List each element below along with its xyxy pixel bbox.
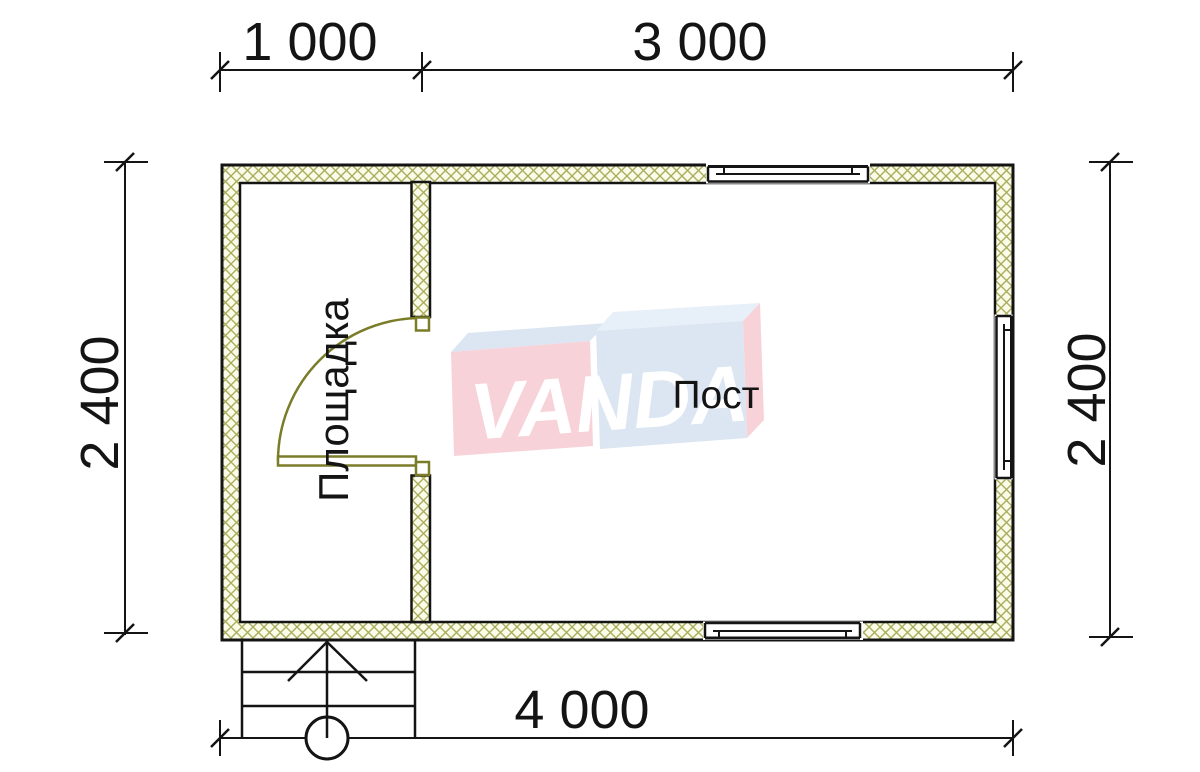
- door-frame-block-top: [416, 318, 429, 331]
- partition-wall-upper: [412, 182, 431, 317]
- dimension-top: 1 000 3 000: [211, 12, 1022, 92]
- window-right-wall: [995, 315, 1013, 480]
- dimension-left: 2 400: [70, 153, 148, 642]
- dim-label-bottom: 4 000: [514, 680, 649, 740]
- window-top-wall: [706, 164, 870, 184]
- dim-label-top-left: 1 000: [242, 12, 377, 72]
- floor-plan-page: 1 000 3 000 2 400 2 400 4 000 VANDA Площ…: [0, 0, 1200, 772]
- dim-label-top-right: 3 000: [632, 12, 767, 72]
- floor-plan-svg: 1 000 3 000 2 400 2 400 4 000 VANDA Площ…: [0, 0, 1200, 772]
- room-label-main: Пост: [672, 374, 759, 417]
- room-label-entry-area: Площадка: [310, 298, 357, 502]
- window-bottom-wall: [703, 622, 863, 641]
- partition-wall-lower: [412, 476, 431, 623]
- dim-label-left: 2 400: [70, 335, 130, 470]
- door-frame-block-bottom: [416, 462, 429, 475]
- dimension-right: 2 400: [1057, 153, 1133, 646]
- dim-label-right: 2 400: [1057, 332, 1117, 467]
